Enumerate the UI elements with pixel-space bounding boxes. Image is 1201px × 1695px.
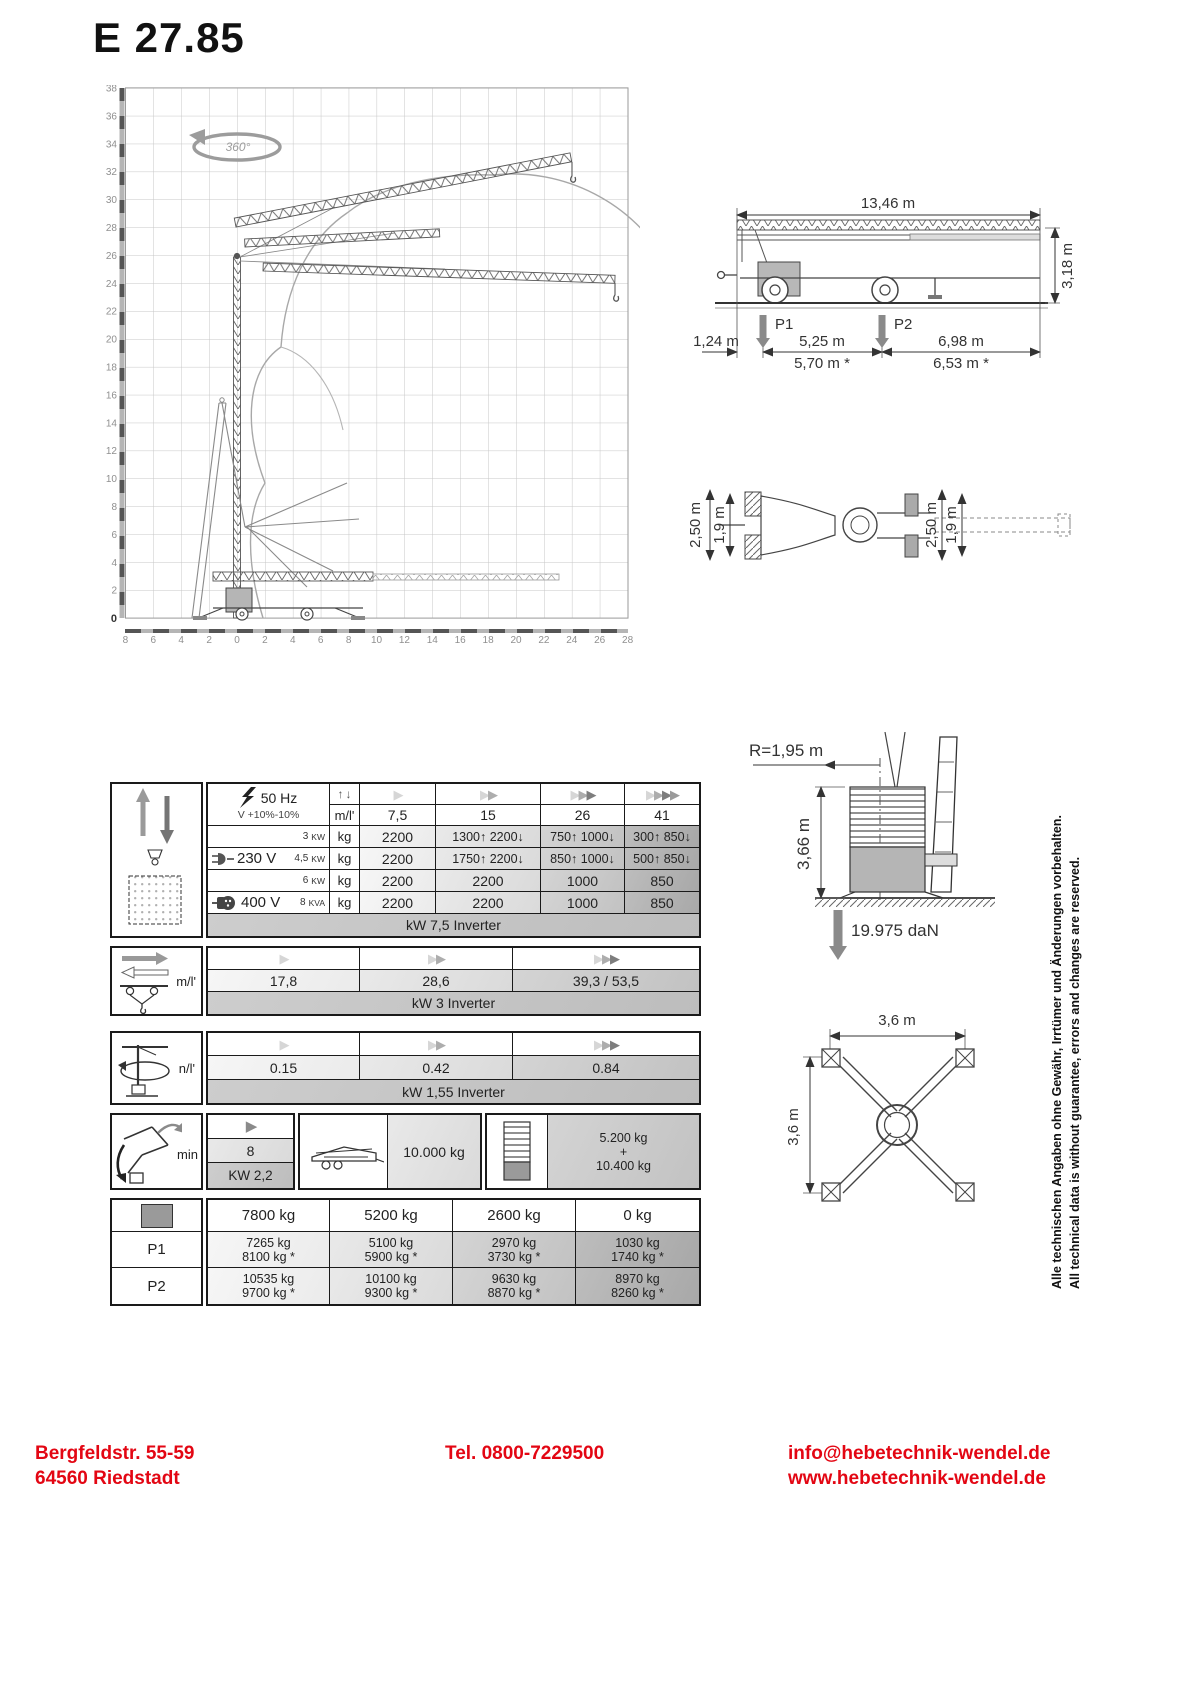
footer-address-line2: 64560 Riedstadt — [35, 1466, 194, 1491]
load-value: 850 — [625, 870, 699, 892]
width-left-outer-label: 2,50 m — [690, 502, 704, 548]
axis-tick: 4 — [290, 635, 296, 645]
load-line: 8970 kg — [615, 1272, 659, 1286]
p1-row-label: P1 — [112, 1232, 201, 1268]
speed-arrows-1-icon: ▶ — [360, 784, 436, 805]
trolley-speed: 28,6 — [360, 970, 513, 992]
load-line: 10100 kg — [365, 1272, 416, 1286]
corner-loads-table: 7800 kg 5200 kg 2600 kg 0 kg 7265 kg 810… — [206, 1198, 701, 1306]
height-label: 3,18 m — [1059, 243, 1076, 289]
trolley-table: ▶ ▶▶ ▶▶▶ 17,8 28,6 39,3 / 53,5 kW 3 Inve… — [206, 946, 701, 1016]
x-axis-ticks: 8 6 4 2 0 2 4 6 8 10 12 14 16 18 20 22 2… — [123, 635, 634, 645]
load-line-alt: 3730 kg * — [488, 1250, 541, 1264]
ballast-header: 0 kg — [576, 1200, 699, 1232]
plug-400v-icon — [212, 895, 238, 911]
erection-time-unit: min — [177, 1147, 198, 1162]
total-length-label: 13,46 m — [861, 195, 915, 212]
span1-label: 5,25 m — [799, 333, 845, 350]
unit-kg: kg — [330, 870, 360, 892]
speed-arrows-1-icon: ▶ — [208, 948, 360, 970]
ballast-line1: 5.200 kg — [600, 1131, 648, 1145]
hoist-icon — [112, 784, 201, 936]
power-value: 4,5 — [294, 853, 308, 864]
rear-view-diagram: R=1,95 m 3,66 m 19.975 daN — [745, 732, 1000, 977]
voltage-tolerance-label: V +10%-10% — [238, 809, 300, 822]
speed-header: 26 — [541, 805, 625, 826]
axis-tick: 10 — [106, 474, 118, 485]
load-line: 9630 kg — [492, 1272, 536, 1286]
unit-kg: kg — [330, 826, 360, 848]
lightning-icon — [240, 787, 256, 809]
ballast-stack-icon — [494, 1118, 540, 1186]
disclaimer-en: All technical data is without guarantee,… — [1066, 729, 1084, 1289]
hoist-power-footer: kW 7,5 Inverter — [208, 914, 699, 936]
erection-time-table: ▶ 8 KW 2,2 — [206, 1113, 295, 1190]
ballast-weight-box: 5.200 kg + 10.400 kg — [485, 1113, 701, 1190]
ballast-radius-label: R=1,95 m — [749, 741, 823, 760]
slewing-speed: 0.84 — [513, 1056, 699, 1080]
speed-header: 15 — [436, 805, 541, 826]
axis-tick: 6 — [111, 530, 117, 541]
axis-tick: 2 — [206, 635, 212, 645]
axis-tick: 2 — [111, 586, 117, 597]
axis-tick: 8 — [123, 635, 129, 645]
load-line-alt: 8260 kg * — [611, 1286, 664, 1300]
ballast-header: 2600 kg — [453, 1200, 576, 1232]
axis-tick: 18 — [106, 363, 118, 374]
corner-loads-label-box: P1 P2 — [110, 1198, 203, 1306]
axis-tick: 20 — [106, 335, 118, 346]
load-value: 1300↑ 2200↓ — [436, 826, 541, 848]
axis-tick: 14 — [106, 418, 118, 429]
span2-label: 6,98 m — [938, 333, 984, 350]
power-unit: KVA — [309, 898, 325, 908]
load-line: 5100 kg — [369, 1236, 413, 1250]
y-axis-ticks: 38 36 34 32 30 28 26 24 22 20 18 16 14 1… — [106, 85, 118, 625]
slewing-unit: n/l' — [179, 1061, 195, 1076]
load-value: 1000 — [541, 870, 625, 892]
axis-tick: 26 — [106, 251, 118, 262]
corner-force-label: 19.975 daN — [851, 921, 939, 940]
trolley-speed: 39,3 / 53,5 — [513, 970, 699, 992]
load-line-alt: 8870 kg * — [488, 1286, 541, 1300]
ballast-line2: + — [620, 1145, 627, 1159]
power-row-label: 230 V 4,5 KW — [208, 848, 330, 870]
slewing-power-footer: kW 1,55 Inverter — [208, 1080, 699, 1103]
axis-tick: 22 — [106, 307, 118, 318]
outrigger-cross-art — [822, 1049, 974, 1201]
axis-tick: 30 — [106, 195, 118, 206]
load-line-alt: 8100 kg * — [242, 1250, 295, 1264]
unit-kg: kg — [330, 848, 360, 870]
hoist-unit: m/l' — [330, 805, 360, 826]
axis-tick: 18 — [483, 635, 495, 645]
ballast-block-icon — [141, 1204, 173, 1228]
ballast-icon-cell — [487, 1115, 548, 1188]
power-row-label: 3 KW — [208, 826, 330, 848]
page-title: E 27.85 — [93, 14, 245, 62]
load-value: 2200 — [360, 870, 436, 892]
load-value: 850↑ 1000↓ — [541, 848, 625, 870]
erection-icon-box: min — [110, 1113, 203, 1190]
p1-load-cell: 1030 kg 1740 kg * — [576, 1232, 699, 1268]
power-row-label: 400 V 8 KVA — [208, 892, 330, 914]
transport-weight-box: 10.000 kg — [298, 1113, 482, 1190]
load-value: 1750↑ 2200↓ — [436, 848, 541, 870]
axis-tick: 28 — [106, 223, 118, 234]
slewing-table: ▶ ▶▶ ▶▶▶ 0.15 0.42 0.84 kW 1,55 Inverter — [206, 1031, 701, 1105]
load-value: 2200 — [436, 892, 541, 914]
slewing-speed: 0.42 — [360, 1056, 513, 1080]
axis-tick: 32 — [106, 167, 118, 178]
disclaimer-de: Alle technischen Angaben ohne Gewähr, Ir… — [1048, 729, 1066, 1289]
top-view-art — [720, 492, 1070, 559]
speed-arrows-2-icon: ▶▶ — [360, 948, 513, 970]
footer-contact: info@hebetechnik-wendel.de www.hebetechn… — [788, 1441, 1050, 1491]
base-cross-diagram: 3,6 m 3,6 m — [775, 1005, 1005, 1215]
p2-load-cell: 10100 kg 9300 kg * — [330, 1268, 453, 1304]
rotation-label: 360° — [226, 140, 251, 154]
span1-alt-label: 5,70 m * — [794, 355, 850, 372]
base-depth-label: 3,6 m — [785, 1108, 802, 1146]
footer-website[interactable]: www.hebetechnik-wendel.de — [788, 1466, 1050, 1491]
trolley-icon — [112, 948, 174, 1014]
power-unit: KW — [311, 876, 325, 886]
speed-arrows-2-icon: ▶▶ — [436, 784, 541, 805]
hoist-icon-box — [110, 782, 203, 938]
slewing-icon-box: n/l' — [110, 1031, 203, 1105]
load-line: 2970 kg — [492, 1236, 536, 1250]
load-line-alt: 9300 kg * — [365, 1286, 418, 1300]
transport-crane-art — [715, 220, 1048, 308]
p1-label: P1 — [775, 316, 793, 333]
span2-alt-label: 6,53 m * — [933, 355, 989, 372]
axis-tick: 22 — [538, 635, 550, 645]
load-value: 2200 — [360, 848, 436, 870]
axis-tick: 20 — [510, 635, 522, 645]
load-line: 10535 kg — [243, 1272, 294, 1286]
ballast-block-cell — [112, 1200, 201, 1232]
axis-tick: 6 — [151, 635, 157, 645]
power-unit: KW — [311, 832, 325, 842]
footer-email[interactable]: info@hebetechnik-wendel.de — [788, 1441, 1050, 1466]
axis-tick: 36 — [106, 111, 118, 122]
load-line-alt: 9700 kg * — [242, 1286, 295, 1300]
axis-tick: 38 — [106, 85, 118, 95]
front-overhang-label: 1,24 m — [693, 333, 739, 350]
unit-kg: kg — [330, 892, 360, 914]
footer-address: Bergfeldstr. 55-59 64560 Riedstadt — [35, 1441, 194, 1491]
erection-power: KW 2,2 — [208, 1163, 293, 1188]
axis-tick: 24 — [106, 279, 118, 290]
transport-top-view: 2,50 m 1,9 m 2,50 m 1,9 m — [690, 478, 1080, 578]
load-value: 750↑ 1000↓ — [541, 826, 625, 848]
p1-load-cell: 5100 kg 5900 kg * — [330, 1232, 453, 1268]
p1-load-cell: 2970 kg 3730 kg * — [453, 1232, 576, 1268]
trolley-unit: m/l' — [176, 974, 196, 989]
voltage-label: 400 V — [241, 894, 280, 911]
p2-load-cell: 10535 kg 9700 kg * — [208, 1268, 330, 1304]
power-unit: KW — [311, 854, 325, 864]
p2-load-cell: 9630 kg 8870 kg * — [453, 1268, 576, 1304]
transport-weight-value: 10.000 kg — [388, 1115, 480, 1188]
ballast-line3: 10.400 kg — [596, 1159, 651, 1173]
load-value: 2200 — [436, 870, 541, 892]
axis-origin: 0 — [111, 613, 117, 625]
axis-tick: 4 — [111, 558, 117, 569]
p2-row-label: P2 — [112, 1268, 201, 1304]
erection-icon — [112, 1115, 182, 1188]
width-left-inner-label: 1,9 m — [711, 506, 728, 544]
frequency-label: 50 Hz — [261, 792, 298, 805]
slewing-speed: 0.15 — [208, 1056, 360, 1080]
axis-tick: 28 — [622, 635, 634, 645]
speed-arrows-4-icon: ▶▶▶▶ — [625, 784, 699, 805]
working-range-diagram: 38 36 34 32 30 28 26 24 22 20 18 16 14 1… — [95, 85, 640, 645]
footer-address-line1: Bergfeldstr. 55-59 — [35, 1441, 194, 1466]
transport-side-view: 13,46 m 3,18 m P1 P2 1,24 m 5,25 m 5,70 … — [680, 190, 1080, 375]
axis-tick: 14 — [427, 635, 439, 645]
power-supply-header: 50 Hz V +10%-10% — [208, 784, 330, 826]
speed-header: 7,5 — [360, 805, 436, 826]
load-line-alt: 5900 kg * — [365, 1250, 418, 1264]
voltage-label: 230 V — [237, 850, 276, 867]
load-line-alt: 1740 kg * — [611, 1250, 664, 1264]
width-right-outer-label: 2,50 m — [923, 502, 940, 548]
speed-arrow-icon: ▶ — [208, 1115, 293, 1139]
axis-tick: 6 — [318, 635, 324, 645]
ballast-height-label: 3,66 m — [794, 818, 813, 870]
plug-230v-icon — [212, 852, 234, 866]
axis-tick: 0 — [234, 635, 240, 645]
ballast-weight-value: 5.200 kg + 10.400 kg — [548, 1115, 699, 1188]
p2-load-cell: 8970 kg 8260 kg * — [576, 1268, 699, 1304]
load-value: 1000 — [541, 892, 625, 914]
erection-time-value: 8 — [208, 1139, 293, 1163]
ballast-header: 7800 kg — [208, 1200, 330, 1232]
load-value: 300↑ 850↓ — [625, 826, 699, 848]
axis-tick: 16 — [106, 390, 118, 401]
speed-arrows-3-icon: ▶▶▶ — [513, 948, 699, 970]
trolley-icon-box: m/l' — [110, 946, 203, 1016]
load-value: 2200 — [360, 826, 436, 848]
hook-updown-icon: ↑↓ — [330, 784, 360, 805]
power-value: 8 — [300, 897, 306, 908]
axis-tick: 26 — [594, 635, 606, 645]
axis-tick: 34 — [106, 139, 118, 150]
footer-phone: Tel. 0800-7229500 — [445, 1441, 604, 1466]
speed-arrows-2-icon: ▶▶ — [360, 1033, 513, 1056]
disclaimer-sidebar: Alle technischen Angaben ohne Gewähr, Ir… — [1048, 729, 1088, 1289]
axis-tick: 12 — [399, 635, 411, 645]
rear-view-art — [815, 732, 995, 907]
speed-arrows-3-icon: ▶▶▶ — [541, 784, 625, 805]
axis-tick: 10 — [371, 635, 383, 645]
height-dimension — [815, 787, 845, 898]
p2-label: P2 — [894, 316, 912, 333]
trolley-speed: 17,8 — [208, 970, 360, 992]
axis-tick: 8 — [111, 502, 117, 513]
power-value: 3 — [303, 831, 309, 842]
axis-tick: 16 — [455, 635, 467, 645]
speed-arrows-3-icon: ▶▶▶ — [513, 1033, 699, 1056]
trolley-power-footer: kW 3 Inverter — [208, 992, 699, 1014]
speed-header: 41 — [625, 805, 699, 826]
trailer-icon-cell — [300, 1115, 388, 1188]
p1-load-cell: 7265 kg 8100 kg * — [208, 1232, 330, 1268]
load-value: 2200 — [360, 892, 436, 914]
power-value: 6 — [303, 875, 309, 886]
axis-tick: 4 — [178, 635, 184, 645]
width-right-inner-label: 1,9 m — [943, 506, 960, 544]
axis-tick: 12 — [106, 446, 118, 457]
load-line: 7265 kg — [246, 1236, 290, 1250]
load-value: 500↑ 850↓ — [625, 848, 699, 870]
diagram-grid — [126, 88, 629, 618]
load-line: 1030 kg — [615, 1236, 659, 1250]
power-row-label: 6 KW — [208, 870, 330, 892]
trailer-icon — [304, 1127, 384, 1177]
hoist-table: 50 Hz V +10%-10% ↑↓ ▶ ▶▶ ▶▶▶ ▶▶▶▶ m/l' 7… — [206, 782, 701, 938]
slewing-icon — [112, 1033, 174, 1103]
axis-tick: 2 — [262, 635, 268, 645]
axis-tick: 8 — [346, 635, 352, 645]
ballast-header: 5200 kg — [330, 1200, 453, 1232]
speed-arrows-1-icon: ▶ — [208, 1033, 360, 1056]
corner-force-arrow — [829, 910, 847, 960]
load-value: 850 — [625, 892, 699, 914]
base-width-label: 3,6 m — [878, 1012, 916, 1029]
axis-tick: 24 — [566, 635, 578, 645]
